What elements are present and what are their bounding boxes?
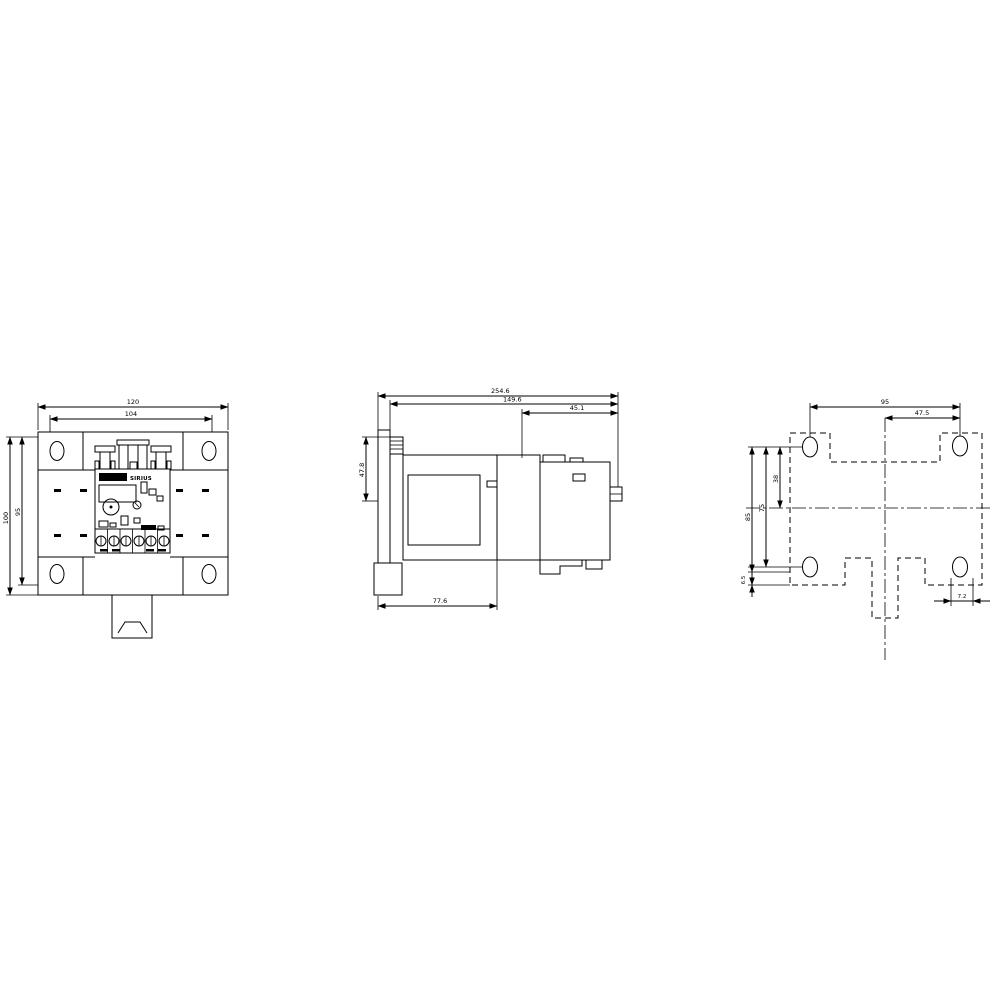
dim-label-side-depth-head: 45.1 xyxy=(570,404,584,412)
brand-label: SIRIUS xyxy=(130,476,152,482)
mounting-hole xyxy=(50,442,64,461)
drawing-svg: 120 104 100 95 xyxy=(0,0,1000,1000)
dim-label-front-width-outer: 120 xyxy=(127,398,139,406)
dimension-drawing: 120 104 100 95 xyxy=(0,0,1000,1000)
drill-hole xyxy=(803,557,818,577)
dim-side-depth-base: 77.6 xyxy=(378,560,497,610)
side-profile xyxy=(374,430,622,595)
mounting-hole xyxy=(202,565,216,584)
dim-label-drill-spacing-h: 95 xyxy=(881,398,889,406)
front-bracket xyxy=(38,432,228,638)
brand-logo-block xyxy=(99,473,127,481)
dim-label-front-width-inner: 104 xyxy=(125,410,137,418)
dim-label-drill-height-outer: 85 xyxy=(744,513,752,521)
relay-body-side xyxy=(403,455,540,560)
drilling-plan-view: 95 47.5 85 75 38 6.5 xyxy=(741,398,992,660)
dim-label-side-depth-base: 77.6 xyxy=(433,597,447,605)
dim-front-height-inner: 95 xyxy=(14,437,38,585)
dim-drill-height-outer: 85 xyxy=(744,447,802,585)
dim-front-width-inner: 104 xyxy=(50,410,212,432)
dim-side-depth-head: 45.1 xyxy=(522,404,618,458)
mounting-plate-side xyxy=(378,430,390,563)
dim-drill-slot-width: 7.2 xyxy=(934,578,990,606)
dim-label-side-depth-total: 254.6 xyxy=(491,387,510,395)
dim-drill-hole-spacing-v: 75 xyxy=(748,447,802,567)
dim-label-drill-edge-offset: 6.5 xyxy=(741,575,747,584)
side-view: 254.6 149.6 45.1 47.8 77.6 xyxy=(358,387,622,610)
dim-label-drill-center-v: 38 xyxy=(772,475,780,483)
mounting-hole xyxy=(50,565,64,584)
dim-drill-center-v: 38 xyxy=(772,447,780,508)
drill-hole xyxy=(803,437,818,457)
dim-side-depth-body: 149.6 xyxy=(390,396,618,438)
terminal-clamp-side xyxy=(390,437,403,454)
drill-hole xyxy=(953,436,968,456)
dim-side-height-rail: 47.8 xyxy=(358,437,390,501)
terminal-block xyxy=(95,529,170,553)
drill-hole xyxy=(953,557,968,577)
dim-label-front-height-outer: 100 xyxy=(2,512,10,524)
mounting-hole xyxy=(202,442,216,461)
relay-head-side xyxy=(540,462,610,560)
dim-label-side-height-rail: 47.8 xyxy=(358,463,366,477)
dim-label-side-depth-body: 149.6 xyxy=(503,396,522,404)
front-view: 120 104 100 95 xyxy=(2,398,228,638)
dim-label-drill-spacing-v: 75 xyxy=(758,504,766,512)
dim-drill-center-h: 47.5 xyxy=(885,409,960,418)
dim-side-depth-total: 254.6 xyxy=(378,387,618,487)
dim-label-drill-center-h: 47.5 xyxy=(915,409,929,417)
drill-outline xyxy=(790,433,982,618)
front-connectors xyxy=(95,440,171,469)
display-window xyxy=(99,485,136,502)
dim-label-front-height-inner: 95 xyxy=(14,508,22,516)
dim-label-drill-slot-width: 7.2 xyxy=(958,594,967,600)
relay-front: SIRIUS xyxy=(95,469,170,553)
mounting-foot xyxy=(374,563,402,595)
